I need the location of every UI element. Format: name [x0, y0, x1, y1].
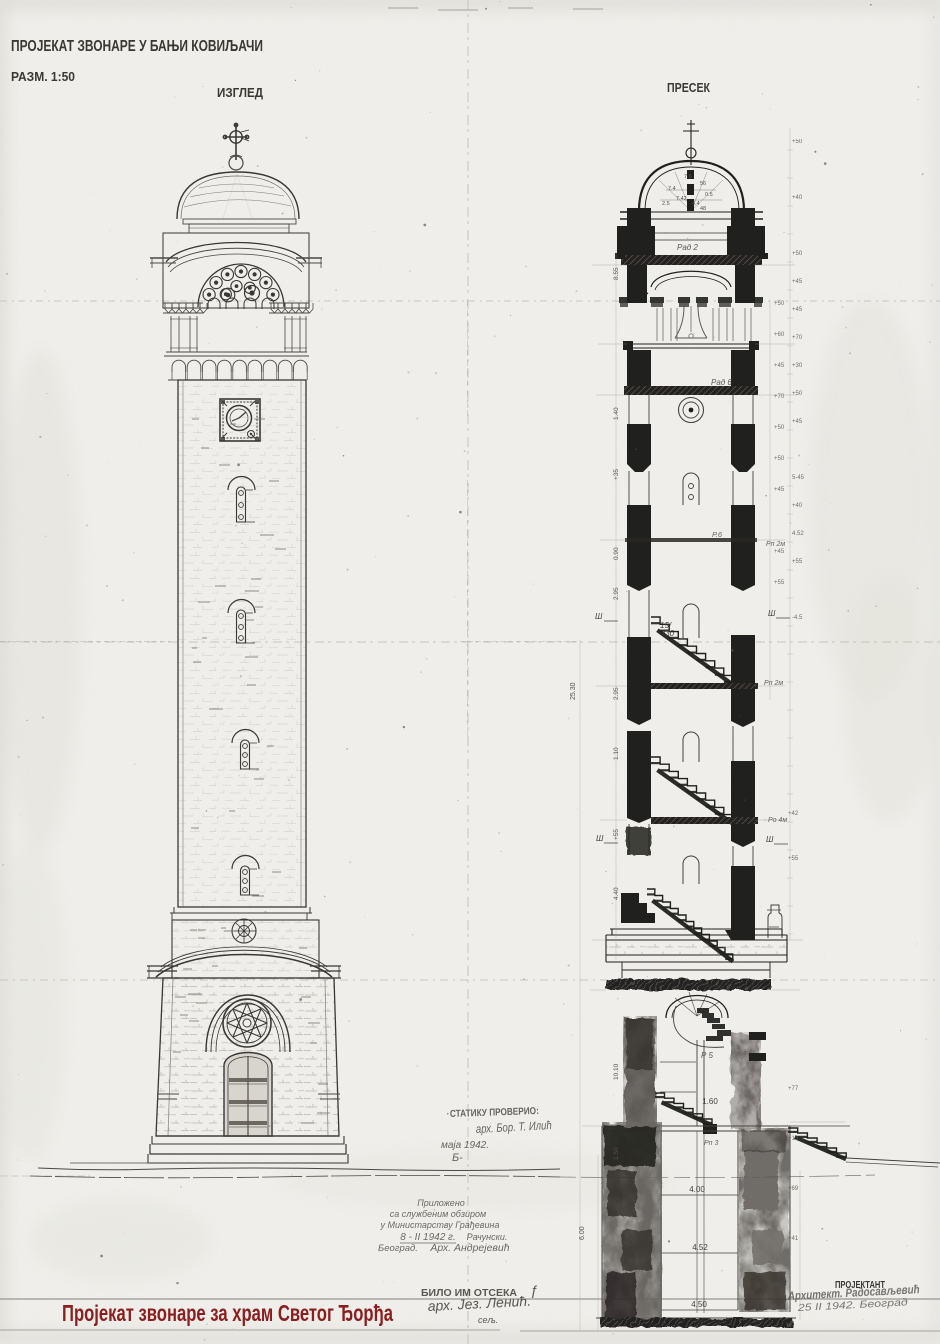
svg-text:+41: +41	[788, 1236, 799, 1242]
svg-text:5-45: 5-45	[792, 475, 805, 481]
svg-text:0.90: 0.90	[613, 547, 620, 560]
svg-text:1.50: 1.50	[613, 1147, 620, 1160]
svg-text:+50: +50	[774, 425, 785, 431]
svg-text:25.30: 25.30	[570, 682, 577, 700]
svg-text:0.5: 0.5	[705, 192, 713, 198]
svg-text:4.40: 4.40	[613, 887, 620, 900]
svg-text:Б-: Б-	[452, 1152, 463, 1164]
svg-text:+50: +50	[792, 251, 803, 257]
svg-text:+35: +35	[613, 469, 620, 480]
svg-text:+50: +50	[774, 301, 785, 307]
svg-text:+70: +70	[792, 335, 803, 341]
svg-text:+77: +77	[788, 1086, 799, 1092]
svg-text:маја 1942.: маја 1942.	[441, 1140, 489, 1151]
svg-text:1.40: 1.40	[613, 407, 620, 420]
svg-text:Арх. Андрејевић: Арх. Андрејевић	[429, 1242, 509, 1254]
svg-text:+13: +13	[788, 1136, 799, 1142]
svg-text:+70: +70	[774, 394, 785, 400]
svg-text:7.42: 7.42	[676, 196, 687, 202]
svg-text:+45: +45	[792, 279, 803, 285]
svg-text:1.10: 1.10	[613, 747, 620, 760]
svg-text:+50: +50	[792, 139, 803, 145]
svg-text:сељ.: сељ.	[478, 1315, 498, 1325]
svg-text:+69: +69	[788, 1186, 799, 1192]
svg-text:Ш: Ш	[596, 834, 604, 843]
svg-text:у Министарству Грађевина: у Министарству Грађевина	[380, 1220, 500, 1230]
svg-text:са службеним обзиром: са службеним обзиром	[390, 1209, 486, 1219]
svg-text:8.55: 8.55	[613, 267, 620, 280]
svg-text:ИЗГЛЕД: ИЗГЛЕД	[217, 85, 264, 100]
svg-text:Р.6: Р.6	[712, 530, 723, 539]
svg-text:ПРОЈЕКАТ ЗВОНАРЕ У БАЊИ КОВИЉА: ПРОЈЕКАТ ЗВОНАРЕ У БАЊИ КОВИЉАЧИ	[11, 38, 263, 55]
svg-text:4.50: 4.50	[691, 1300, 707, 1309]
svg-text:Рп 2м: Рп 2м	[764, 680, 783, 687]
svg-text:-4.5: -4.5	[792, 615, 803, 621]
svg-text:48: 48	[700, 206, 706, 212]
svg-text:+55: +55	[774, 580, 785, 586]
svg-text:Ш: Ш	[595, 612, 603, 621]
svg-text:+45: +45	[774, 549, 785, 555]
svg-text:Ш: Ш	[766, 835, 774, 844]
svg-text:7.4: 7.4	[668, 186, 676, 192]
svg-text:РАЗМ. 1:50: РАЗМ. 1:50	[11, 69, 75, 84]
svg-text:4.00: 4.00	[689, 1185, 705, 1194]
svg-text:+55: +55	[788, 856, 799, 862]
svg-text:Ро 4м: Ро 4м	[768, 817, 787, 824]
svg-text:+50: +50	[792, 391, 803, 397]
svg-text:Р 5: Р 5	[701, 1051, 714, 1060]
svg-text:4.4: 4.4	[692, 201, 700, 207]
svg-text:ПРЕСЕК: ПРЕСЕК	[667, 80, 710, 95]
svg-text:+42: +42	[788, 811, 799, 817]
svg-text:Ш: Ш	[768, 609, 776, 618]
svg-text:2.5: 2.5	[662, 201, 670, 207]
svg-text:+40: +40	[792, 195, 803, 201]
svg-text:Приложено: Приложено	[417, 1198, 465, 1208]
svg-text:+45: +45	[774, 363, 785, 369]
svg-text:+40: +40	[792, 503, 803, 509]
svg-text:Београд.: Београд.	[378, 1243, 418, 1254]
svg-text:Рп 2м: Рп 2м	[766, 541, 785, 548]
svg-text:10.10: 10.10	[613, 1063, 620, 1080]
svg-text:/30: /30	[662, 629, 675, 638]
svg-text:+45: +45	[792, 419, 803, 425]
svg-text:56: 56	[700, 181, 706, 187]
svg-text:2.95: 2.95	[613, 587, 620, 600]
svg-text:Рачунски.: Рачунски.	[467, 1232, 508, 1242]
svg-text:+50: +50	[774, 456, 785, 462]
svg-text:4.52: 4.52	[692, 1243, 708, 1252]
svg-text:Пројекат звонаре за храм Свето: Пројекат звонаре за храм Светог Ђорђа	[62, 1300, 393, 1326]
svg-text:+45: +45	[792, 307, 803, 313]
svg-text:Рад 6: Рад 6	[711, 378, 732, 387]
svg-text:+45: +45	[774, 487, 785, 493]
svg-text:+60: +60	[774, 332, 785, 338]
svg-text:Рп 3: Рп 3	[704, 1140, 718, 1147]
svg-text:+30: +30	[792, 363, 803, 369]
svg-text:4.52: 4.52	[792, 531, 804, 537]
svg-text:7.6: 7.6	[684, 174, 692, 180]
svg-text:+55: +55	[792, 559, 803, 565]
svg-text:Рад 2: Рад 2	[677, 243, 698, 252]
svg-text:1.60: 1.60	[702, 1097, 718, 1106]
svg-text:+55: +55	[613, 829, 620, 840]
svg-text:ƒ: ƒ	[530, 1282, 538, 1298]
svg-text:2.95: 2.95	[613, 687, 620, 700]
